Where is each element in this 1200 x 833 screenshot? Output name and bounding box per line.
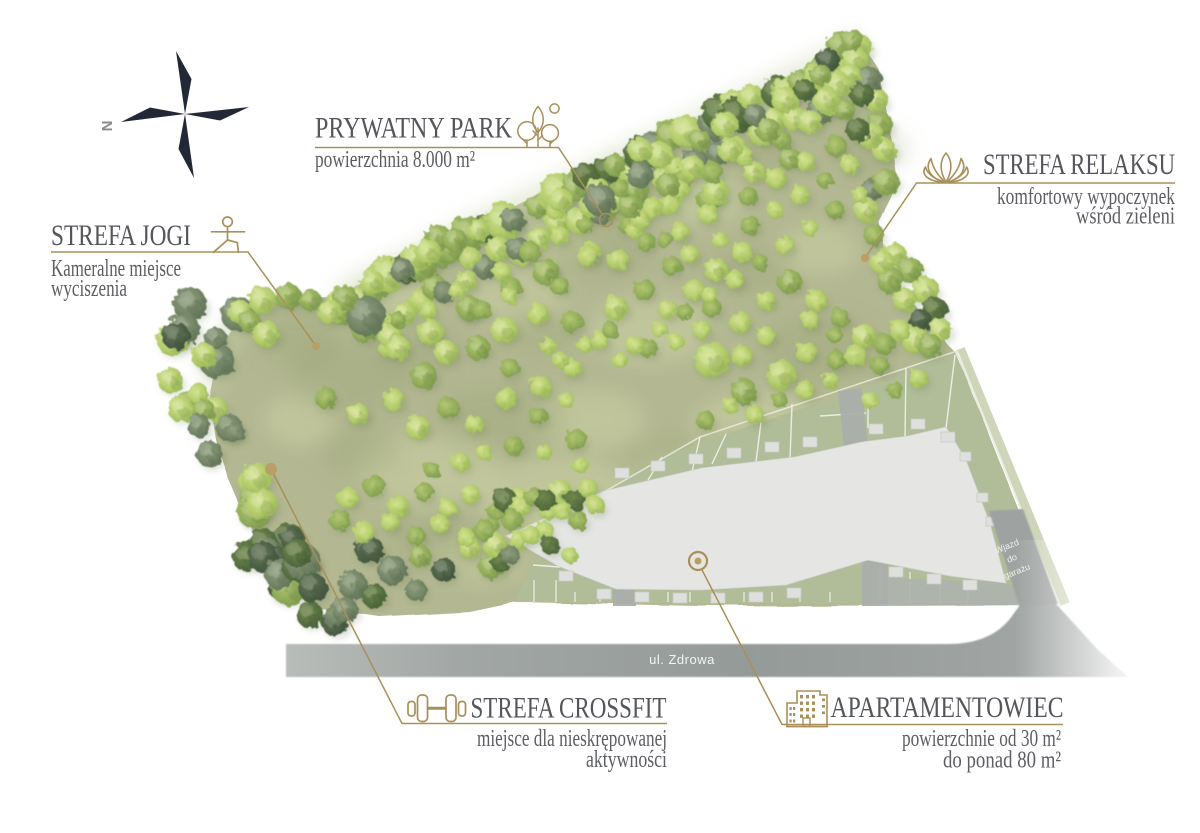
svg-text:wyciszenia: wyciszenia (51, 275, 127, 302)
svg-text:wśród zieleni: wśród zieleni (1076, 203, 1175, 230)
svg-text:STREFA RELAKSU: STREFA RELAKSU (983, 148, 1175, 181)
svg-text:APARTAMENTOWIEC: APARTAMENTOWIEC (831, 691, 1064, 724)
svg-text:N: N (99, 121, 116, 132)
svg-text:powierzchnia 8.000 m²: powierzchnia 8.000 m² (315, 146, 475, 173)
svg-text:ul. Zdrowa: ul. Zdrowa (649, 652, 715, 667)
svg-text:PRYWATNY PARK: PRYWATNY PARK (315, 112, 512, 145)
svg-text:do ponad 80 m²: do ponad 80 m² (943, 747, 1061, 774)
svg-text:STREFA JOGI: STREFA JOGI (51, 219, 191, 252)
svg-text:aktywności: aktywności (586, 746, 667, 773)
svg-text:STREFA CROSSFIT: STREFA CROSSFIT (471, 692, 667, 725)
